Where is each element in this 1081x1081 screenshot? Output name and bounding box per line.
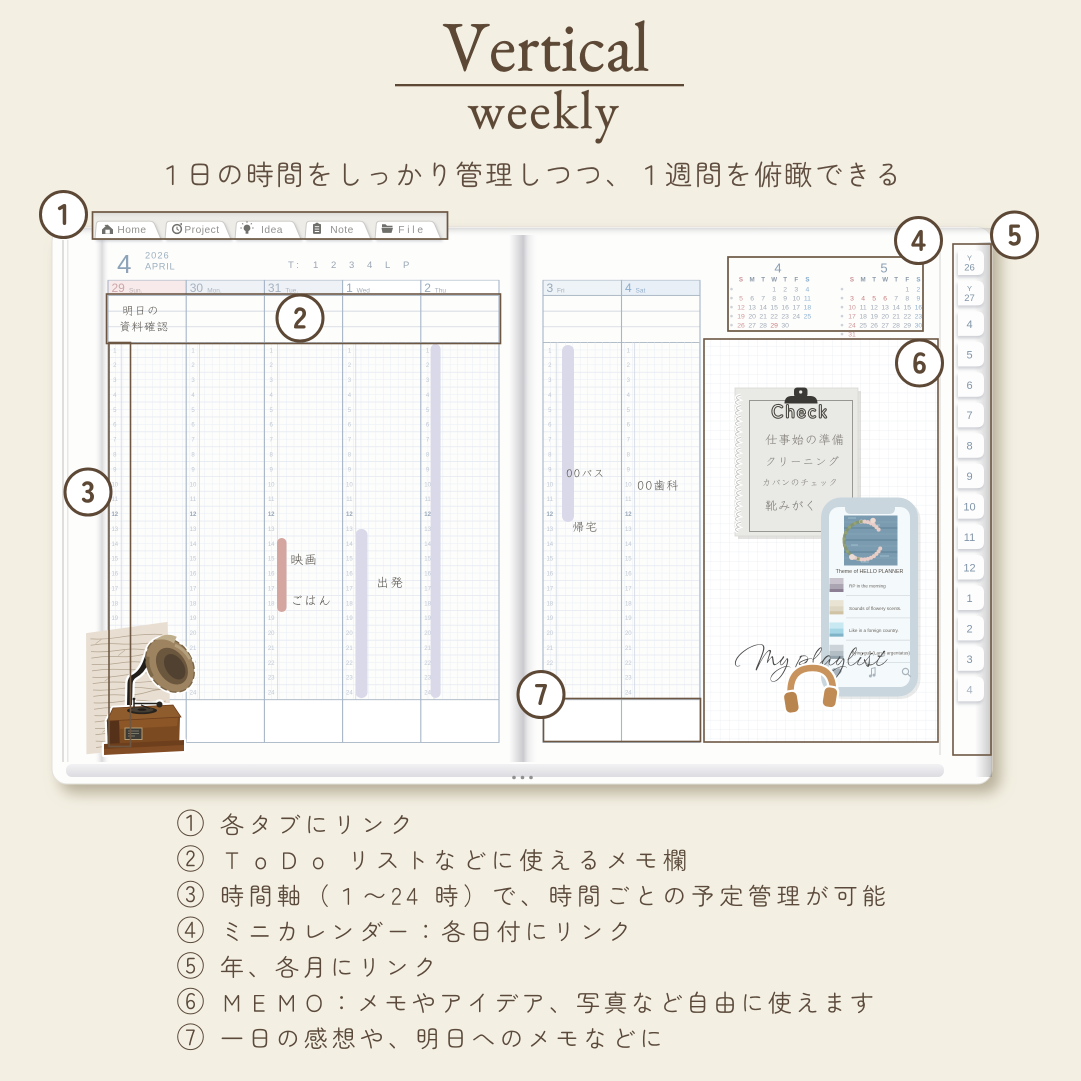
svg-text:13: 13 [268, 527, 275, 533]
svg-text:24: 24 [190, 691, 197, 697]
svg-text:flying gull (Larus argentatus): flying gull (Larus argentatus) [852, 650, 910, 655]
svg-text:30: 30 [781, 323, 789, 330]
svg-text:15: 15 [268, 557, 275, 563]
svg-text:12: 12 [111, 512, 118, 518]
svg-text:27: 27 [881, 323, 889, 330]
svg-text:Like in a foreign country.: Like in a foreign country. [849, 628, 899, 633]
svg-text:10: 10 [625, 482, 632, 488]
svg-text:Note: Note [330, 225, 354, 236]
svg-text:M: M [861, 277, 866, 284]
svg-text:19: 19 [546, 616, 553, 622]
svg-text:17: 17 [111, 586, 118, 592]
svg-text:9: 9 [917, 296, 921, 303]
svg-text:11: 11 [112, 497, 119, 503]
svg-text:11: 11 [964, 532, 975, 544]
svg-text:22: 22 [770, 314, 778, 321]
svg-text:2: 2 [917, 287, 921, 294]
svg-text:24: 24 [424, 691, 431, 697]
svg-text:4: 4 [966, 684, 972, 696]
svg-text:12: 12 [737, 305, 745, 312]
svg-text:10: 10 [963, 502, 975, 514]
svg-text:15: 15 [424, 557, 431, 563]
svg-text:13: 13 [346, 527, 353, 533]
svg-text:1: 1 [772, 287, 776, 294]
svg-text:Project: Project [184, 225, 219, 236]
svg-text:M: M [750, 277, 755, 284]
svg-text:26: 26 [870, 323, 878, 330]
svg-text:12: 12 [546, 512, 553, 518]
svg-text:T :: T : [288, 260, 299, 271]
svg-text:5: 5 [966, 349, 972, 361]
svg-text:4: 4 [625, 281, 632, 295]
svg-text:Y: Y [967, 284, 972, 293]
svg-text:9: 9 [783, 296, 787, 303]
svg-text:19: 19 [190, 616, 197, 622]
svg-text:18: 18 [546, 601, 553, 607]
svg-text:4: 4 [774, 261, 781, 276]
svg-text:RP in the morning: RP in the morning [849, 584, 886, 589]
svg-text:1: 1 [346, 281, 353, 295]
svg-text:23: 23 [268, 676, 275, 682]
svg-text:20: 20 [881, 314, 889, 321]
svg-text:14: 14 [892, 305, 900, 312]
svg-text:30: 30 [190, 281, 204, 295]
svg-text:16: 16 [190, 572, 197, 578]
svg-text:24: 24 [268, 691, 275, 697]
svg-text:21: 21 [268, 646, 275, 652]
svg-text:Sat: Sat [636, 288, 646, 295]
svg-text:12: 12 [424, 512, 431, 518]
svg-text:21: 21 [346, 646, 353, 652]
svg-text:12: 12 [268, 512, 275, 518]
svg-text:15: 15 [111, 557, 118, 563]
svg-text:4: 4 [367, 260, 372, 271]
svg-text:23: 23 [915, 314, 923, 321]
svg-text:15: 15 [625, 557, 632, 563]
svg-text:22: 22 [625, 661, 632, 667]
svg-text:F: F [794, 277, 798, 284]
svg-text:Y: Y [967, 254, 972, 263]
svg-text:20: 20 [748, 314, 756, 321]
svg-text:21: 21 [546, 646, 553, 652]
svg-text:20: 20 [190, 631, 197, 637]
svg-text:17: 17 [848, 314, 856, 321]
svg-text:31: 31 [848, 332, 856, 339]
svg-text:17: 17 [424, 586, 431, 592]
svg-text:6: 6 [750, 296, 754, 303]
svg-text:22: 22 [268, 661, 275, 667]
svg-text:26: 26 [737, 323, 745, 330]
svg-text:S: S [850, 277, 854, 284]
svg-text:S: S [805, 277, 809, 284]
svg-text:11: 11 [424, 497, 431, 503]
svg-text:6: 6 [883, 296, 887, 303]
svg-text:11: 11 [860, 305, 867, 312]
svg-text:3: 3 [850, 296, 854, 303]
svg-text:7: 7 [761, 296, 765, 303]
svg-text:18: 18 [804, 305, 812, 312]
svg-text:P: P [403, 260, 409, 271]
svg-text:T: T [761, 277, 765, 284]
svg-text:18: 18 [190, 601, 197, 607]
svg-text:23: 23 [346, 676, 353, 682]
svg-text:28: 28 [759, 323, 767, 330]
svg-text:2: 2 [331, 260, 336, 271]
svg-text:3: 3 [966, 654, 972, 666]
svg-text:10: 10 [424, 482, 431, 488]
svg-text:4: 4 [966, 319, 972, 331]
svg-text:5: 5 [872, 296, 876, 303]
svg-text:24: 24 [848, 323, 856, 330]
svg-text:6: 6 [966, 380, 972, 392]
svg-text:13: 13 [625, 527, 632, 533]
svg-text:2: 2 [966, 623, 972, 635]
svg-text:13: 13 [748, 305, 756, 312]
svg-text:13: 13 [546, 527, 553, 533]
svg-text:14: 14 [625, 542, 632, 548]
svg-text:12: 12 [346, 512, 353, 518]
svg-text:10: 10 [546, 482, 553, 488]
svg-text:4: 4 [861, 296, 865, 303]
svg-text:W: W [882, 277, 888, 284]
svg-text:18: 18 [424, 601, 431, 607]
svg-text:23: 23 [424, 676, 431, 682]
svg-text:10: 10 [848, 305, 856, 312]
svg-text:12: 12 [190, 512, 197, 518]
svg-text:Home: Home [117, 225, 146, 236]
svg-text:5: 5 [739, 296, 743, 303]
svg-text:11: 11 [804, 296, 811, 303]
svg-text:24: 24 [793, 314, 801, 321]
svg-text:File: File [398, 225, 426, 236]
svg-text:9: 9 [966, 471, 972, 483]
svg-text:14: 14 [546, 542, 553, 548]
svg-text:15: 15 [904, 305, 912, 312]
svg-text:APRIL: APRIL [145, 262, 175, 272]
svg-text:8: 8 [905, 296, 909, 303]
svg-text:21: 21 [190, 646, 197, 652]
svg-text:25: 25 [804, 314, 812, 321]
svg-text:10: 10 [793, 296, 801, 303]
svg-text:25: 25 [859, 323, 867, 330]
svg-text:16: 16 [424, 572, 431, 578]
svg-text:8: 8 [966, 441, 972, 453]
svg-text:23: 23 [781, 314, 789, 321]
svg-text:13: 13 [881, 305, 889, 312]
svg-text:10: 10 [346, 482, 353, 488]
svg-text:22: 22 [904, 314, 912, 321]
svg-text:24: 24 [625, 691, 632, 697]
svg-text:13: 13 [111, 527, 118, 533]
svg-text:29: 29 [904, 323, 912, 330]
svg-text:2: 2 [424, 281, 431, 295]
svg-text:21: 21 [759, 314, 767, 321]
svg-text:T: T [783, 277, 787, 284]
svg-text:20: 20 [546, 631, 553, 637]
svg-text:17: 17 [793, 305, 801, 312]
svg-text:16: 16 [546, 572, 553, 578]
svg-text:27: 27 [748, 323, 756, 330]
svg-text:7: 7 [894, 296, 898, 303]
svg-text:18: 18 [625, 601, 632, 607]
svg-text:22: 22 [424, 661, 431, 667]
svg-text:8: 8 [772, 296, 776, 303]
svg-text:20: 20 [346, 631, 353, 637]
svg-text:23: 23 [625, 676, 632, 682]
svg-text:22: 22 [546, 661, 553, 667]
svg-text:16: 16 [625, 572, 632, 578]
svg-text:Idea: Idea [261, 225, 283, 236]
svg-text:27: 27 [964, 293, 975, 304]
svg-text:3: 3 [547, 281, 554, 295]
svg-text:15: 15 [346, 557, 353, 563]
svg-text:13: 13 [424, 527, 431, 533]
svg-text:26: 26 [964, 263, 975, 274]
svg-text:1: 1 [966, 593, 972, 605]
svg-text:19: 19 [111, 616, 118, 622]
svg-text:14: 14 [424, 542, 431, 548]
svg-text:4: 4 [117, 249, 131, 279]
svg-text:Theme of HELLO PLANNER: Theme of HELLO PLANNER [836, 569, 904, 575]
svg-text:11: 11 [547, 497, 554, 503]
svg-text:16: 16 [111, 572, 118, 578]
svg-text:22: 22 [346, 661, 353, 667]
svg-text:20: 20 [424, 631, 431, 637]
svg-text:18: 18 [111, 601, 118, 607]
svg-text:Fri: Fri [557, 288, 565, 295]
svg-text:3: 3 [794, 287, 798, 294]
svg-text:2026: 2026 [145, 251, 170, 261]
svg-text:29: 29 [112, 281, 126, 295]
svg-text:10: 10 [268, 482, 275, 488]
svg-text:19: 19 [625, 616, 632, 622]
svg-text:16: 16 [781, 305, 789, 312]
svg-text:29: 29 [770, 323, 778, 330]
svg-text:28: 28 [892, 323, 900, 330]
svg-text:17: 17 [625, 586, 632, 592]
svg-text:T: T [894, 277, 898, 284]
svg-text:16: 16 [915, 305, 923, 312]
svg-text:L: L [385, 260, 390, 271]
svg-text:19: 19 [346, 616, 353, 622]
svg-text:S: S [739, 277, 743, 284]
svg-text:17: 17 [546, 586, 553, 592]
svg-text:14: 14 [268, 542, 275, 548]
svg-text:F: F [905, 277, 909, 284]
svg-text:16: 16 [268, 572, 275, 578]
svg-text:7: 7 [966, 410, 972, 422]
svg-text:14: 14 [346, 542, 353, 548]
svg-text:19: 19 [268, 616, 275, 622]
svg-text:18: 18 [268, 601, 275, 607]
svg-text:Sounds of flowery scents.: Sounds of flowery scents. [849, 606, 901, 611]
svg-text:S: S [916, 277, 920, 284]
svg-text:19: 19 [737, 314, 745, 321]
svg-text:18: 18 [859, 314, 867, 321]
svg-text:17: 17 [190, 586, 197, 592]
svg-text:5: 5 [880, 261, 887, 276]
svg-text:19: 19 [424, 616, 431, 622]
svg-text:21: 21 [424, 646, 431, 652]
svg-text:3: 3 [349, 260, 354, 271]
svg-text:20: 20 [625, 631, 632, 637]
svg-text:15: 15 [190, 557, 197, 563]
svg-text:13: 13 [190, 527, 197, 533]
svg-text:19: 19 [870, 314, 878, 321]
svg-text:21: 21 [892, 314, 900, 321]
svg-text:17: 17 [268, 586, 275, 592]
svg-text:12: 12 [625, 512, 632, 518]
svg-text:11: 11 [346, 497, 353, 503]
svg-text:1: 1 [313, 260, 318, 271]
svg-text:10: 10 [190, 482, 197, 488]
svg-text:17: 17 [346, 586, 353, 592]
svg-text:12: 12 [870, 305, 878, 312]
svg-text:31: 31 [268, 281, 282, 295]
svg-text:11: 11 [268, 497, 275, 503]
svg-text:10: 10 [111, 482, 118, 488]
svg-text:14: 14 [111, 542, 118, 548]
svg-text:2: 2 [783, 287, 787, 294]
svg-text:15: 15 [770, 305, 778, 312]
svg-text:12: 12 [963, 563, 975, 575]
svg-text:24: 24 [346, 691, 353, 697]
svg-text:11: 11 [190, 497, 197, 503]
svg-text:14: 14 [190, 542, 197, 548]
svg-text:4: 4 [806, 287, 810, 294]
svg-text:16: 16 [346, 572, 353, 578]
svg-text:30: 30 [915, 323, 923, 330]
svg-text:20: 20 [268, 631, 275, 637]
svg-text:1: 1 [905, 287, 909, 294]
svg-text:18: 18 [346, 601, 353, 607]
svg-text:15: 15 [546, 557, 553, 563]
svg-text:W: W [771, 277, 777, 284]
svg-text:21: 21 [625, 646, 632, 652]
svg-text:11: 11 [625, 497, 632, 503]
svg-text:T: T [872, 277, 876, 284]
svg-text:14: 14 [759, 305, 767, 312]
